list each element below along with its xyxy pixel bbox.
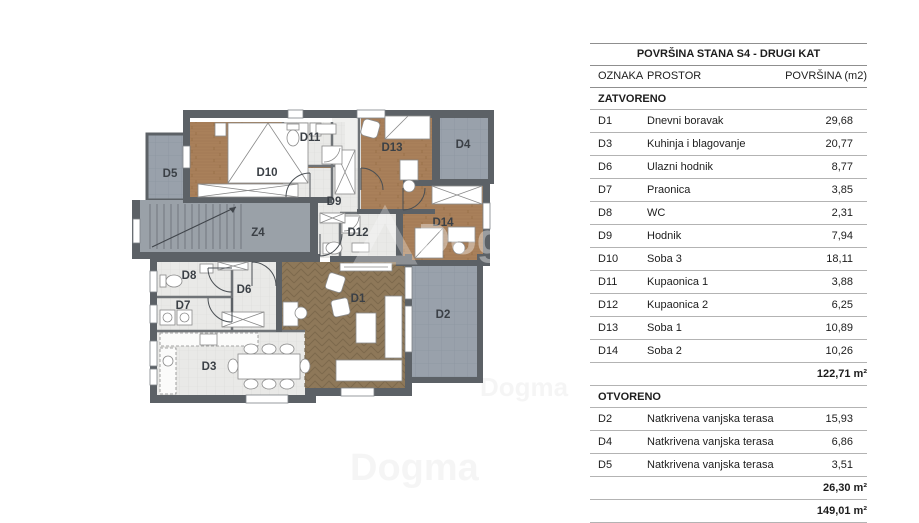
window <box>150 341 157 366</box>
room-label-d8: D8 <box>182 270 197 282</box>
room-label-z4: Z4 <box>251 227 265 239</box>
table-row: D9Hodnik7,94 <box>590 225 867 248</box>
table-row: D14Soba 210,26 <box>590 340 867 363</box>
table-title: POVRŠINA STANA S4 - DRUGI KAT <box>590 43 867 66</box>
room-label-d4: D4 <box>456 139 471 151</box>
watermark-ghost: Dogma <box>480 372 569 402</box>
room-label-d5: D5 <box>163 168 178 180</box>
cell-code: D1 <box>590 110 647 132</box>
cell-space: Soba 2 <box>647 340 825 362</box>
cell-area: 29,68 <box>825 110 867 132</box>
toilet-tank <box>160 275 166 287</box>
section-header: OTVORENO <box>590 386 867 408</box>
cell-code: D11 <box>590 271 647 293</box>
chair <box>262 344 276 354</box>
window <box>150 369 157 385</box>
window <box>150 305 157 323</box>
window <box>183 146 190 168</box>
subtotal-row: 122,71 m² <box>590 363 867 386</box>
toilet-tank <box>287 124 299 130</box>
cell-space: Natkrivena vanjska terasa <box>647 408 825 430</box>
chair <box>295 307 307 319</box>
room-label-d13: D13 <box>381 142 402 154</box>
table-row: D10Soba 318,11 <box>590 248 867 271</box>
window <box>405 306 412 352</box>
chair <box>280 344 294 354</box>
table-row: D7Praonica3,85 <box>590 179 867 202</box>
cell-code: D13 <box>590 317 647 339</box>
sofa <box>336 360 402 381</box>
table-row: D1Dnevni boravak29,68 <box>590 110 867 133</box>
section-header: ZATVORENO <box>590 88 867 110</box>
toilet <box>166 275 182 287</box>
table-row: D6Ulazni hodnik8,77 <box>590 156 867 179</box>
cell-area: 3,85 <box>832 179 867 201</box>
kitchen-sink <box>163 356 173 366</box>
room-label-d1: D1 <box>351 293 366 305</box>
table-row: D13Soba 110,89 <box>590 317 867 340</box>
chair <box>244 379 258 389</box>
cell-code: D7 <box>590 179 647 201</box>
cell-space: Soba 3 <box>647 248 826 270</box>
table-row: D5Natkrivena vanjska terasa3,51 <box>590 454 867 477</box>
room-label-d6: D6 <box>237 284 252 296</box>
room-label-d9: D9 <box>327 196 342 208</box>
window <box>133 219 140 243</box>
cell-area: 6,86 <box>832 431 867 453</box>
stairwell-z4 <box>140 200 312 252</box>
toilet <box>287 130 299 146</box>
room-label-d3: D3 <box>202 361 217 373</box>
table-row: D3Kuhinja i blagovanje20,77 <box>590 133 867 156</box>
cell-code: D5 <box>590 454 647 476</box>
cell-area: 10,26 <box>825 340 867 362</box>
cell-area: 3,51 <box>832 454 867 476</box>
window <box>288 110 303 118</box>
cell-space: Natkrivena vanjska terasa <box>647 454 832 476</box>
shower <box>322 146 342 164</box>
dining-table <box>238 354 300 379</box>
table-row: D12Kupaonica 26,25 <box>590 294 867 317</box>
nightstand <box>215 123 226 136</box>
cell-area: 10,89 <box>825 317 867 339</box>
header-povrsina: POVRŠINA (m2) <box>785 66 867 87</box>
cell-area: 3,88 <box>832 271 867 293</box>
window <box>357 110 385 118</box>
cell-area: 20,77 <box>825 133 867 155</box>
cell-space: WC <box>647 202 832 224</box>
cell-area: 8,77 <box>832 156 867 178</box>
room-d5-terrace <box>147 134 187 200</box>
cell-code: D9 <box>590 225 647 247</box>
cell-area: 2,31 <box>832 202 867 224</box>
cell-space: Natkrivena vanjska terasa <box>647 431 832 453</box>
subtotal-row: 26,30 m² <box>590 477 867 500</box>
chair <box>244 344 258 354</box>
cell-space: Praonica <box>647 179 832 201</box>
cell-area: 15,93 <box>825 408 867 430</box>
cell-code: D14 <box>590 340 647 362</box>
table-row: D11Kupaonica 13,88 <box>590 271 867 294</box>
table-row: D4Natkrivena vanjska terasa6,86 <box>590 431 867 454</box>
cell-space: Dnevni boravak <box>647 110 825 132</box>
chair <box>403 180 415 192</box>
chair <box>300 359 310 373</box>
window <box>405 267 412 299</box>
cell-space: Kupaonica 1 <box>647 271 832 293</box>
header-prostor: PROSTOR <box>647 66 785 87</box>
area-table-rows: ZATVORENOD1Dnevni boravak29,68D3Kuhinja … <box>590 88 867 523</box>
room-label-d12: D12 <box>347 227 368 239</box>
cell-space: Kupaonica 2 <box>647 294 832 316</box>
chair <box>280 379 294 389</box>
header-oznaka: OZNAKA <box>590 66 647 87</box>
kitchen-counter <box>160 348 176 394</box>
sofa <box>385 296 402 358</box>
stove <box>200 334 217 345</box>
watermark-ghost: Dogma <box>350 447 480 489</box>
cell-code: D2 <box>590 408 647 430</box>
room-label-d2: D2 <box>436 309 451 321</box>
cell-code: D6 <box>590 156 647 178</box>
watermark-sub: nekretnine <box>500 255 570 272</box>
room-label-d7: D7 <box>176 300 191 312</box>
cell-space: Hodnik <box>647 225 832 247</box>
desk <box>400 160 418 180</box>
cell-area: 7,94 <box>832 225 867 247</box>
chair <box>228 359 238 373</box>
table-row: D2Natkrivena vanjska terasa15,93 <box>590 408 867 431</box>
window <box>150 271 157 292</box>
cell-code: D3 <box>590 133 647 155</box>
table-row: D8WC2,31 <box>590 202 867 225</box>
area-table: POVRŠINA STANA S4 - DRUGI KAT OZNAKA PRO… <box>590 43 867 523</box>
coffee-table <box>356 313 376 343</box>
cell-code: D4 <box>590 431 647 453</box>
total-row: 149,01 m² <box>590 500 867 523</box>
cell-code: D12 <box>590 294 647 316</box>
armchair <box>331 297 351 317</box>
room-label-d11: D11 <box>300 132 321 144</box>
cell-space: Ulazni hodnik <box>647 156 832 178</box>
cell-space: Kuhinja i blagovanje <box>647 133 825 155</box>
cell-area: 6,25 <box>832 294 867 316</box>
cell-area: 18,11 <box>826 248 867 270</box>
table-header: OZNAKA PROSTOR POVRŠINA (m2) <box>590 66 867 88</box>
window <box>246 395 288 403</box>
cell-space: Soba 1 <box>647 317 825 339</box>
cell-code: D8 <box>590 202 647 224</box>
balcony-door-sill <box>341 388 374 396</box>
room-label-d10: D10 <box>256 167 277 179</box>
chair <box>262 379 276 389</box>
cell-code: D10 <box>590 248 647 270</box>
bed <box>385 116 430 139</box>
